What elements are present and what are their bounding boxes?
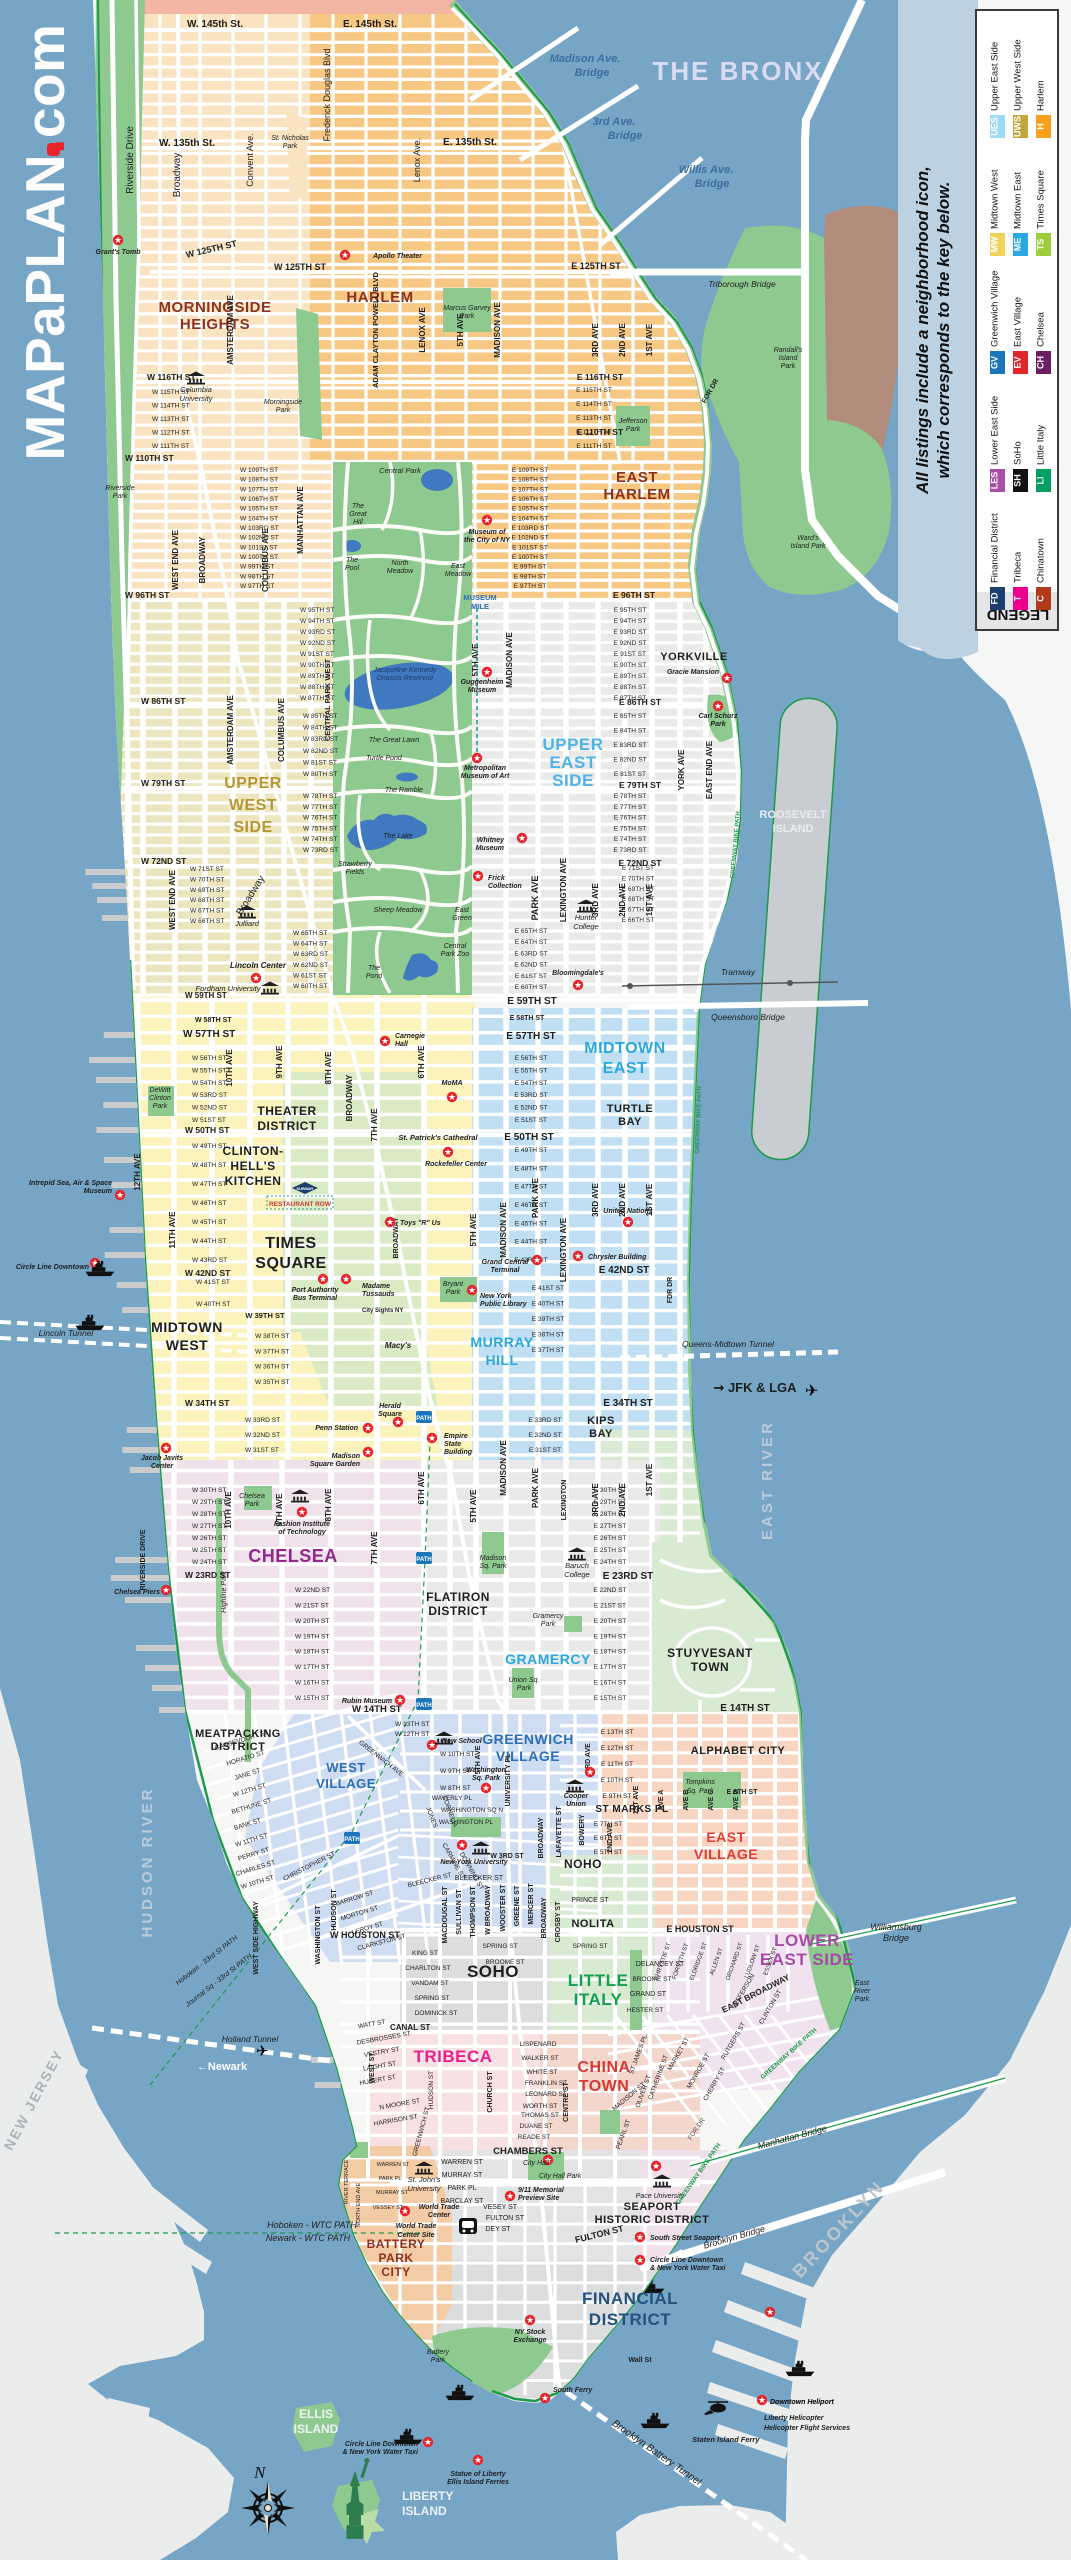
svg-text:W 32ND ST: W 32ND ST xyxy=(245,1432,280,1439)
svg-text:E 93RD ST: E 93RD ST xyxy=(613,629,646,636)
svg-text:E 94TH ST: E 94TH ST xyxy=(614,618,647,625)
svg-text:★: ★ xyxy=(394,1417,402,1427)
svg-text:BROADWAY: BROADWAY xyxy=(541,1897,548,1938)
svg-text:VILLAGE: VILLAGE xyxy=(694,1846,758,1862)
svg-text:8TH AVE: 8TH AVE xyxy=(324,1051,333,1085)
svg-text:Park: Park xyxy=(517,1685,532,1692)
svg-text:The: The xyxy=(346,557,358,564)
svg-text:E 22ND ST: E 22ND ST xyxy=(593,1587,626,1594)
svg-text:SUBWAY: SUBWAY xyxy=(296,1186,314,1191)
svg-text:7TH AVE: 7TH AVE xyxy=(370,1108,379,1142)
svg-text:★: ★ xyxy=(526,2315,534,2325)
svg-text:3RD AVE: 3RD AVE xyxy=(591,1482,600,1516)
svg-text:Intrepid Sea, Air & Space: Intrepid Sea, Air & Space xyxy=(29,1180,112,1187)
svg-text:Julliard: Julliard xyxy=(234,919,260,928)
svg-text:W 69TH ST: W 69TH ST xyxy=(190,887,224,894)
svg-text:Madison: Madison xyxy=(480,1555,507,1562)
svg-text:PARK PL: PARK PL xyxy=(379,2176,402,2182)
svg-text:EAST: EAST xyxy=(549,753,596,772)
svg-text:E 79TH ST: E 79TH ST xyxy=(619,780,662,790)
svg-text:Chelsea Piers: Chelsea Piers xyxy=(114,1589,160,1596)
svg-text:College: College xyxy=(564,1570,589,1579)
svg-text:W 27TH ST: W 27TH ST xyxy=(192,1523,226,1530)
svg-text:East Village: East Village xyxy=(1013,297,1024,347)
svg-text:E 125TH ST: E 125TH ST xyxy=(571,261,621,271)
svg-text:Broadway: Broadway xyxy=(172,153,183,197)
svg-text:Park: Park xyxy=(283,143,298,150)
svg-text:★: ★ xyxy=(636,2255,644,2265)
svg-text:Turtle Pond: Turtle Pond xyxy=(366,755,403,762)
svg-text:E 96TH ST: E 96TH ST xyxy=(613,590,656,600)
svg-text:Midtown East: Midtown East xyxy=(1013,172,1024,229)
svg-text:E 108TH ST: E 108TH ST xyxy=(512,477,548,484)
svg-text:W 106TH ST: W 106TH ST xyxy=(240,496,278,503)
svg-text:E 90TH ST: E 90TH ST xyxy=(614,662,647,669)
svg-text:★: ★ xyxy=(468,1285,476,1295)
svg-text:Museum of: Museum of xyxy=(469,529,507,536)
svg-text:Chinatown: Chinatown xyxy=(1036,538,1047,583)
svg-text:E 89TH ST: E 89TH ST xyxy=(614,673,647,680)
svg-text:LOWER: LOWER xyxy=(774,1931,840,1950)
svg-text:ADAM CLAYTON POWELL BLVD: ADAM CLAYTON POWELL BLVD xyxy=(371,271,380,388)
svg-text:MACDOUGAL ST: MACDOUGAL ST xyxy=(442,1886,449,1944)
svg-text:LEXINGTON AVE: LEXINGTON AVE xyxy=(559,857,568,922)
svg-text:United Nations: United Nations xyxy=(603,1208,652,1215)
svg-text:ME: ME xyxy=(1013,238,1023,252)
svg-text:Center: Center xyxy=(428,2212,451,2219)
svg-text:E 61ST ST: E 61ST ST xyxy=(515,973,547,980)
svg-text:DUANE ST: DUANE ST xyxy=(520,2123,553,2130)
svg-text:W 110TH ST: W 110TH ST xyxy=(125,453,174,463)
svg-text:Circle Line Downtown: Circle Line Downtown xyxy=(16,1264,89,1271)
svg-text:E 66TH ST: E 66TH ST xyxy=(622,917,655,924)
svg-text:MURRAY ST: MURRAY ST xyxy=(442,2172,483,2179)
svg-text:PARK AVE: PARK AVE xyxy=(531,1177,540,1218)
svg-text:GREENWICH: GREENWICH xyxy=(482,1731,574,1747)
svg-text:W 108TH ST: W 108TH ST xyxy=(240,477,278,484)
svg-text:W 102ND ST: W 102ND ST xyxy=(240,535,279,542)
svg-text:MADISON AVE: MADISON AVE xyxy=(499,1202,508,1258)
svg-text:HELL'S: HELL'S xyxy=(230,1159,275,1173)
svg-text:Tussauds: Tussauds xyxy=(362,1291,395,1298)
svg-text:E 57TH ST: E 57TH ST xyxy=(506,1031,555,1042)
svg-text:TOWN: TOWN xyxy=(579,2078,630,2095)
svg-text:E 23RD ST: E 23RD ST xyxy=(603,1571,654,1582)
svg-text:Upper West Side: Upper West Side xyxy=(1013,39,1024,111)
svg-text:New York University: New York University xyxy=(440,1859,508,1866)
svg-text:Washington: Washington xyxy=(466,1767,506,1774)
svg-text:Fashion Institute: Fashion Institute xyxy=(274,1521,330,1528)
svg-text:LEXINGTON: LEXINGTON xyxy=(561,1480,568,1521)
svg-text:W 45TH ST: W 45TH ST xyxy=(192,1219,226,1226)
svg-text:Willis Ave.: Willis Ave. xyxy=(679,164,734,176)
svg-text:AMSTERDAM AVE: AMSTERDAM AVE xyxy=(226,294,235,364)
svg-text:ROOSEVELT: ROOSEVELT xyxy=(759,809,826,821)
svg-text:Financial District: Financial District xyxy=(990,513,1001,583)
svg-text:The: The xyxy=(352,503,364,510)
svg-text:Apollo Theater: Apollo Theater xyxy=(372,253,423,260)
svg-text:W 22ND ST: W 22ND ST xyxy=(295,1587,330,1594)
svg-text:The: The xyxy=(368,965,380,972)
svg-text:CHELSEA: CHELSEA xyxy=(248,1546,338,1566)
svg-text:Carl Schurz: Carl Schurz xyxy=(699,713,738,720)
svg-text:★: ★ xyxy=(162,1443,170,1453)
svg-text:W 116TH ST: W 116TH ST xyxy=(147,372,196,382)
svg-text:Sq. Park: Sq. Park xyxy=(480,1563,507,1570)
svg-text:South Street Seaport: South Street Seaport xyxy=(650,2235,720,2242)
svg-text:W 47TH ST: W 47TH ST xyxy=(192,1181,226,1188)
svg-text:LENOX AVE: LENOX AVE xyxy=(418,307,427,353)
svg-text:E 10TH ST: E 10TH ST xyxy=(601,1777,634,1784)
svg-text:W 74TH ST: W 74TH ST xyxy=(303,836,337,843)
svg-text:W. 135th St.: W. 135th St. xyxy=(159,138,215,149)
svg-text:8TH AVE: 8TH AVE xyxy=(324,1488,333,1522)
svg-text:CITY: CITY xyxy=(381,2265,410,2279)
svg-text:LAFAYETTE ST: LAFAYETTE ST xyxy=(556,1806,563,1858)
svg-text:E 37TH ST: E 37TH ST xyxy=(532,1347,565,1354)
svg-text:★: ★ xyxy=(341,250,349,260)
svg-text:W 77TH ST: W 77TH ST xyxy=(303,804,337,811)
svg-text:E 104TH ST: E 104TH ST xyxy=(512,515,548,522)
svg-text:E 40TH ST: E 40TH ST xyxy=(532,1301,565,1308)
svg-text:SPRING ST: SPRING ST xyxy=(572,1943,607,1950)
svg-text:Chelsea: Chelsea xyxy=(1036,311,1047,347)
svg-text:LEONARD ST: LEONARD ST xyxy=(525,2091,567,2098)
svg-text:★: ★ xyxy=(518,833,526,843)
svg-text:W 65TH ST: W 65TH ST xyxy=(293,930,327,937)
svg-text:SIDE: SIDE xyxy=(233,819,272,836)
svg-text:★: ★ xyxy=(714,701,722,711)
svg-text:E 111TH ST: E 111TH ST xyxy=(576,443,611,450)
svg-text:ELLIS: ELLIS xyxy=(299,2407,333,2421)
svg-text:W 60TH ST: W 60TH ST xyxy=(293,983,327,990)
svg-text:W 100TH ST: W 100TH ST xyxy=(240,554,278,561)
svg-text:Terminal: Terminal xyxy=(491,1267,521,1274)
svg-text:Empire: Empire xyxy=(444,1433,468,1440)
svg-text:NOLITA: NOLITA xyxy=(571,1918,614,1930)
svg-text:MURRAY ST: MURRAY ST xyxy=(376,2190,409,2196)
svg-text:W 61ST ST: W 61ST ST xyxy=(293,972,327,979)
svg-text:VILLAGE: VILLAGE xyxy=(316,1776,376,1791)
svg-text:WALKER ST: WALKER ST xyxy=(521,2055,558,2062)
svg-text:Battery: Battery xyxy=(427,2349,450,2356)
svg-text:W 13TH ST: W 13TH ST xyxy=(395,1721,429,1728)
svg-text:St. Patrick's Cathedral: St. Patrick's Cathedral xyxy=(398,1133,478,1142)
svg-text:★: ★ xyxy=(252,973,260,983)
svg-text:Helicopter Flight Services: Helicopter Flight Services xyxy=(764,2425,850,2432)
svg-text:E 42ND ST: E 42ND ST xyxy=(599,1265,650,1276)
svg-text:W 28TH ST: W 28TH ST xyxy=(192,1511,226,1518)
svg-text:E 99TH ST: E 99TH ST xyxy=(514,564,547,571)
svg-text:3RD AVE: 3RD AVE xyxy=(591,322,600,356)
svg-text:E 24TH ST: E 24TH ST xyxy=(594,1559,627,1566)
svg-text:St. John's: St. John's xyxy=(408,2175,441,2184)
svg-text:W 54TH ST: W 54TH ST xyxy=(192,1080,226,1087)
svg-text:LIBERTY: LIBERTY xyxy=(402,2489,453,2503)
svg-text:CENTRAL PARK WEST: CENTRAL PARK WEST xyxy=(323,658,332,741)
svg-text:E 114TH ST: E 114TH ST xyxy=(576,401,612,408)
svg-text:★: ★ xyxy=(444,1147,452,1157)
svg-text:BROOME ST: BROOME ST xyxy=(485,1959,524,1966)
svg-text:DEY ST: DEY ST xyxy=(485,2226,511,2233)
svg-text:W 12TH ST: W 12TH ST xyxy=(395,1731,429,1738)
svg-text:VESSEY ST: VESSEY ST xyxy=(373,2205,404,2211)
svg-text:KING ST: KING ST xyxy=(412,1950,438,1957)
svg-text:PATH: PATH xyxy=(416,1416,431,1422)
svg-text:RIVERSIDE DRIVE: RIVERSIDE DRIVE xyxy=(140,1529,147,1590)
svg-text:W 68TH ST: W 68TH ST xyxy=(190,897,224,904)
svg-text:W 125TH ST: W 125TH ST xyxy=(274,262,327,272)
svg-text:W 21ST ST: W 21ST ST xyxy=(295,1602,329,1609)
svg-text:★: ★ xyxy=(766,2307,774,2317)
svg-text:Fordham University: Fordham University xyxy=(195,984,261,993)
svg-text:WOOSTER ST: WOOSTER ST xyxy=(500,1884,507,1932)
svg-text:WARREN ST: WARREN ST xyxy=(377,2162,410,2168)
svg-text:E 50TH ST: E 50TH ST xyxy=(504,1132,553,1143)
svg-text:ISLAND: ISLAND xyxy=(294,2422,339,2436)
svg-text:W 67TH ST: W 67TH ST xyxy=(190,908,224,915)
svg-text:DeWitt: DeWitt xyxy=(150,1087,172,1094)
svg-text:W 24TH ST: W 24TH ST xyxy=(192,1559,226,1566)
svg-text:←Newark: ←Newark xyxy=(197,2061,248,2073)
svg-text:Bus Terminal: Bus Terminal xyxy=(293,1295,338,1302)
svg-text:CLINTON-: CLINTON- xyxy=(222,1144,283,1158)
svg-text:FLATIRON: FLATIRON xyxy=(426,1590,490,1604)
svg-text:MoMA: MoMA xyxy=(442,1080,463,1087)
svg-text:SPRING ST: SPRING ST xyxy=(482,1943,517,1950)
svg-text:NY Stock: NY Stock xyxy=(515,2329,547,2336)
svg-text:W 81ST ST: W 81ST ST xyxy=(303,759,337,766)
svg-text:★: ★ xyxy=(424,2437,432,2447)
svg-text:Morningside: Morningside xyxy=(264,399,302,406)
svg-text:Carnegie: Carnegie xyxy=(395,1033,425,1040)
svg-text:MIDTOWN: MIDTOWN xyxy=(151,1319,223,1335)
svg-text:★: ★ xyxy=(114,235,122,245)
svg-text:W 10TH ST: W 10TH ST xyxy=(440,1751,474,1758)
svg-text:E 106TH ST: E 106TH ST xyxy=(512,496,548,503)
svg-text:World Trade: World Trade xyxy=(396,2223,437,2230)
svg-text:7TH AVE: 7TH AVE xyxy=(370,1531,379,1565)
svg-text:VESEY ST: VESEY ST xyxy=(483,2204,518,2211)
svg-text:W BROADWAY: W BROADWAY xyxy=(485,1885,492,1935)
svg-text:Madison Ave.: Madison Ave. xyxy=(550,53,621,65)
svg-text:E 45TH ST: E 45TH ST xyxy=(515,1220,548,1227)
svg-text:Baruch: Baruch xyxy=(565,1561,589,1570)
svg-text:W 107TH ST: W 107TH ST xyxy=(240,486,278,493)
svg-text:Gramercy: Gramercy xyxy=(533,1613,564,1620)
svg-text:W 63RD ST: W 63RD ST xyxy=(293,951,328,958)
svg-text:E 20TH ST: E 20TH ST xyxy=(594,1618,627,1625)
svg-text:W 71ST ST: W 71ST ST xyxy=(190,866,224,873)
svg-text:NORTH END AVE: NORTH END AVE xyxy=(356,2182,362,2227)
svg-text:Bridge: Bridge xyxy=(883,1933,909,1943)
svg-text:★: ★ xyxy=(364,1447,372,1457)
svg-text:1ST AVE: 1ST AVE xyxy=(645,1463,654,1496)
svg-text:Frick: Frick xyxy=(488,875,506,882)
svg-text:★: ★ xyxy=(473,753,481,763)
svg-text:LEXINGTON AVE: LEXINGTON AVE xyxy=(559,1217,568,1282)
svg-text:E 100TH ST: E 100TH ST xyxy=(512,554,548,561)
svg-text:LITTLE: LITTLE xyxy=(568,1971,629,1990)
svg-text:the City of NY: the City of NY xyxy=(464,537,511,544)
svg-text:W 14TH ST: W 14TH ST xyxy=(352,1704,402,1715)
svg-text:E 64TH ST: E 64TH ST xyxy=(515,939,548,946)
svg-text:ISLAND: ISLAND xyxy=(773,823,814,835)
svg-text:★: ★ xyxy=(474,871,482,881)
svg-text:BLEECKER ST: BLEECKER ST xyxy=(455,1875,504,1882)
svg-text:W 64TH ST: W 64TH ST xyxy=(293,941,327,948)
svg-text:E 44TH ST: E 44TH ST xyxy=(515,1239,548,1246)
svg-text:E 84TH ST: E 84TH ST xyxy=(614,728,647,735)
svg-text:DISTRICT: DISTRICT xyxy=(257,1119,317,1133)
svg-text:St. Nicholas: St. Nicholas xyxy=(271,135,309,142)
svg-text:Ellis Island Ferries: Ellis Island Ferries xyxy=(447,2479,509,2486)
svg-text:Cooper: Cooper xyxy=(564,1793,590,1800)
svg-text:W 93RD ST: W 93RD ST xyxy=(300,629,335,636)
svg-text:BATTERY: BATTERY xyxy=(367,2237,426,2251)
svg-text:PARK: PARK xyxy=(378,2251,413,2265)
svg-text:W 78TH ST: W 78TH ST xyxy=(303,793,337,800)
svg-text:Exchange: Exchange xyxy=(513,2337,546,2344)
svg-text:★: ★ xyxy=(483,667,491,677)
svg-text:E 88TH ST: E 88TH ST xyxy=(614,684,647,691)
svg-text:Convent Ave.: Convent Ave. xyxy=(245,133,255,186)
svg-text:WEST SIDE HIGHWAY: WEST SIDE HIGHWAY xyxy=(253,1901,260,1975)
svg-text:PARK AVE: PARK AVE xyxy=(531,1467,540,1508)
svg-text:W 15TH ST: W 15TH ST xyxy=(295,1695,329,1702)
svg-text:CHURCH ST: CHURCH ST xyxy=(487,2071,494,2113)
svg-text:W 46TH ST: W 46TH ST xyxy=(192,1200,226,1207)
svg-text:2ND AVE: 2ND AVE xyxy=(618,1482,627,1516)
svg-text:& New York Water Taxi: & New York Water Taxi xyxy=(650,2265,727,2272)
svg-text:Park: Park xyxy=(276,407,291,414)
svg-text:3RD AVE: 3RD AVE xyxy=(591,1182,600,1216)
svg-text:HISTORIC DISTRICT: HISTORIC DISTRICT xyxy=(595,2214,710,2226)
svg-text:W 85TH ST: W 85TH ST xyxy=(303,713,337,720)
svg-text:VANDAM ST: VANDAM ST xyxy=(411,1980,448,1987)
svg-text:Meadow: Meadow xyxy=(387,568,414,575)
svg-text:★: ★ xyxy=(381,1036,389,1046)
svg-text:W 52ND ST: W 52ND ST xyxy=(192,1105,227,1112)
svg-text:Museum of Art: Museum of Art xyxy=(461,773,510,780)
svg-text:W 95TH ST: W 95TH ST xyxy=(300,607,334,614)
svg-text:E 101ST ST: E 101ST ST xyxy=(512,544,548,551)
svg-text:Little Italy: Little Italy xyxy=(1036,425,1047,465)
svg-text:MADISON AVE: MADISON AVE xyxy=(493,302,502,358)
svg-text:Liberty Helicopter: Liberty Helicopter xyxy=(764,2415,825,2422)
svg-text:2ND AVE: 2ND AVE xyxy=(618,322,627,356)
svg-text:W 39TH ST: W 39TH ST xyxy=(245,1311,285,1320)
svg-text:City Hall Park: City Hall Park xyxy=(539,2173,582,2180)
svg-text:2ND AVE: 2ND AVE xyxy=(607,1823,614,1853)
svg-text:W 20TH ST: W 20TH ST xyxy=(295,1618,329,1625)
svg-text:Park: Park xyxy=(245,1501,260,1508)
svg-text:WEST: WEST xyxy=(326,1760,366,1775)
svg-text:E 82ND ST: E 82ND ST xyxy=(613,757,646,764)
svg-text:World Trade: World Trade xyxy=(419,2204,460,2211)
svg-text:W 26TH ST: W 26TH ST xyxy=(192,1535,226,1542)
svg-text:E 77TH ST: E 77TH ST xyxy=(614,804,647,811)
svg-text:Museum: Museum xyxy=(84,1188,112,1195)
svg-text:W 42ND ST: W 42ND ST xyxy=(185,1268,231,1278)
svg-text:★: ★ xyxy=(319,1274,327,1284)
svg-text:W 17TH ST: W 17TH ST xyxy=(295,1664,329,1671)
svg-text:★: ★ xyxy=(116,1190,124,1200)
svg-text:W 70TH ST: W 70TH ST xyxy=(190,876,224,883)
svg-text:Park: Park xyxy=(113,493,128,500)
svg-text:CHINA: CHINA xyxy=(577,2059,630,2076)
svg-text:W 50TH ST: W 50TH ST xyxy=(185,1125,230,1135)
svg-text:N: N xyxy=(253,2463,267,2482)
svg-text:➞ JFK & LGA: ➞ JFK & LGA xyxy=(713,1380,797,1395)
svg-text:E 85TH ST: E 85TH ST xyxy=(614,713,647,720)
svg-text:Preview Site: Preview Site xyxy=(518,2195,559,2202)
svg-text:MURRAY: MURRAY xyxy=(470,1334,533,1350)
svg-text:GRAMERCY: GRAMERCY xyxy=(505,1651,591,1667)
svg-text:E. 135th St.: E. 135th St. xyxy=(443,137,497,148)
svg-text:Park: Park xyxy=(710,721,726,728)
svg-text:MAPaPLAN.com: MAPaPLAN.com xyxy=(14,24,76,461)
svg-text:W 36TH ST: W 36TH ST xyxy=(255,1364,289,1371)
svg-text:Pond: Pond xyxy=(366,973,383,980)
svg-text:MW: MW xyxy=(990,236,1000,252)
svg-text:DOMINICK ST: DOMINICK ST xyxy=(415,2010,458,2017)
svg-text:FRANKLIN ST: FRANKLIN ST xyxy=(525,2080,567,2087)
svg-text:E 92ND ST: E 92ND ST xyxy=(613,640,646,647)
svg-text:6TH AVE: 6TH AVE xyxy=(417,1045,426,1079)
svg-text:E 49TH ST: E 49TH ST xyxy=(515,1147,548,1154)
svg-text:T: T xyxy=(1013,595,1023,601)
svg-text:SPRING ST: SPRING ST xyxy=(414,1995,449,2002)
svg-text:E 17TH ST: E 17TH ST xyxy=(594,1664,627,1671)
svg-text:Staten Island Ferry: Staten Island Ferry xyxy=(692,2435,760,2444)
svg-text:Ward's: Ward's xyxy=(797,535,819,542)
svg-text:WEST: WEST xyxy=(166,1337,208,1353)
svg-text:TS: TS xyxy=(1036,239,1046,251)
svg-text:E 81ST ST: E 81ST ST xyxy=(614,771,646,778)
svg-text:BROOME ST: BROOME ST xyxy=(632,1976,671,1983)
svg-text:MIDTOWN: MIDTOWN xyxy=(584,1040,665,1057)
svg-text:1ST AVE: 1ST AVE xyxy=(645,883,654,916)
svg-text:E 16TH ST: E 16TH ST xyxy=(594,1680,627,1687)
svg-text:E 11TH ST: E 11TH ST xyxy=(601,1761,633,1768)
svg-text:Hill: Hill xyxy=(353,519,363,526)
svg-text:WASHINGTON PL: WASHINGTON PL xyxy=(439,1819,494,1826)
svg-text:★: ★ xyxy=(541,2393,549,2403)
svg-text:E 98TH ST: E 98TH ST xyxy=(514,573,547,580)
svg-text:Queensboro Bridge: Queensboro Bridge xyxy=(711,1012,785,1022)
svg-text:W 56TH ST: W 56TH ST xyxy=(192,1055,226,1062)
svg-text:New York: New York xyxy=(480,1293,513,1300)
svg-text:MUSEUM: MUSEUM xyxy=(463,593,496,602)
svg-text:W 16TH ST: W 16TH ST xyxy=(295,1680,329,1687)
svg-text:Macy's: Macy's xyxy=(385,1341,412,1350)
svg-text:SEAPORT: SEAPORT xyxy=(624,2201,681,2213)
svg-text:NOHO: NOHO xyxy=(564,1857,602,1871)
svg-text:E 39TH ST: E 39TH ST xyxy=(532,1316,565,1323)
svg-text:HILL: HILL xyxy=(485,1352,518,1368)
svg-text:WORTH ST: WORTH ST xyxy=(523,2103,558,2110)
svg-text:Pool: Pool xyxy=(345,565,359,572)
svg-text:★: ★ xyxy=(428,1433,436,1443)
svg-text:E. 145th St.: E. 145th St. xyxy=(343,19,397,30)
svg-text:E 76TH ST: E 76TH ST xyxy=(614,815,647,822)
svg-text:W 40TH ST: W 40TH ST xyxy=(196,1301,230,1308)
svg-text:Strawberry: Strawberry xyxy=(338,861,372,868)
svg-text:Upper East Side: Upper East Side xyxy=(990,42,1001,111)
svg-text:Highline Park: Highline Park xyxy=(221,1571,228,1613)
svg-text:E 13TH ST: E 13TH ST xyxy=(601,1729,634,1736)
